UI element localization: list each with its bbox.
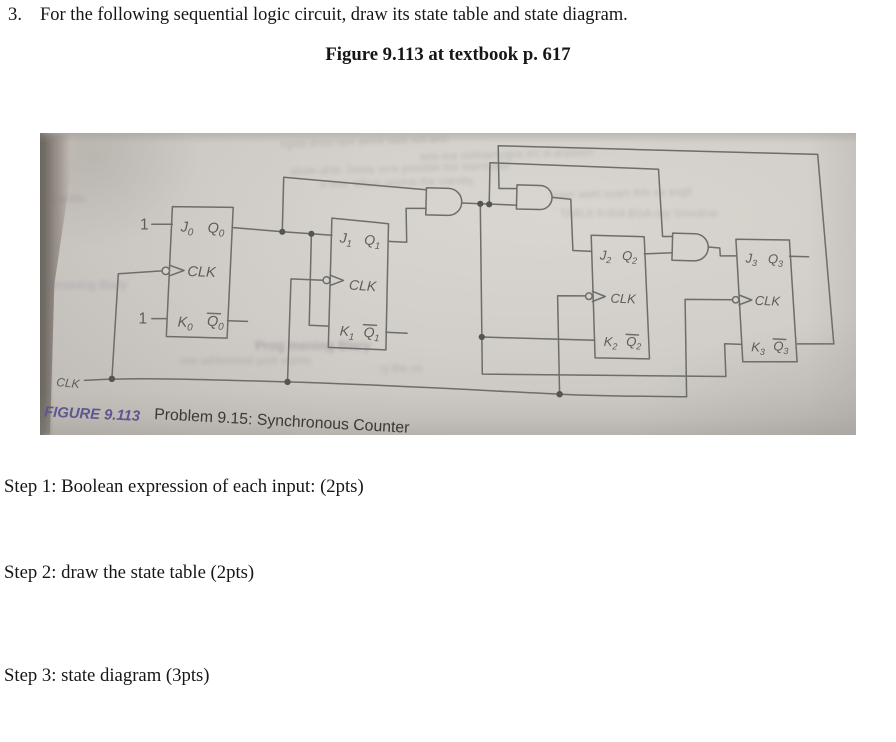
svg-text:Q3: Q3 xyxy=(768,251,784,269)
svg-text:K0: K0 xyxy=(177,315,193,334)
svg-text:Q2: Q2 xyxy=(622,248,638,266)
svg-text:Q1: Q1 xyxy=(363,324,380,344)
svg-text:CLK: CLK xyxy=(755,293,782,309)
svg-text:Q3: Q3 xyxy=(773,338,789,356)
svg-text:CLK: CLK xyxy=(610,291,637,307)
svg-text:1: 1 xyxy=(139,311,148,328)
svg-text:Problem 9.15: Synchronous Coun: Problem 9.15: Synchronous Counter xyxy=(154,406,410,435)
svg-text:J0: J0 xyxy=(179,219,194,238)
svg-text:FIGURE 9.113: FIGURE 9.113 xyxy=(44,405,141,425)
svg-text:CLK: CLK xyxy=(349,277,378,295)
svg-text:Q1: Q1 xyxy=(364,232,381,252)
svg-text:Q0: Q0 xyxy=(207,220,225,239)
svg-text:1: 1 xyxy=(140,217,149,234)
svg-text:J3: J3 xyxy=(744,250,757,268)
svg-text:CLK: CLK xyxy=(56,375,81,391)
svg-text:K1: K1 xyxy=(339,323,355,343)
svg-text:K2: K2 xyxy=(603,334,617,352)
svg-text:CLK: CLK xyxy=(187,264,217,281)
svg-text:J1: J1 xyxy=(338,229,352,249)
svg-text:Q2: Q2 xyxy=(626,334,642,352)
svg-text:J2: J2 xyxy=(599,248,612,266)
svg-text:K3: K3 xyxy=(751,339,765,357)
svg-text:Q0: Q0 xyxy=(207,314,225,333)
